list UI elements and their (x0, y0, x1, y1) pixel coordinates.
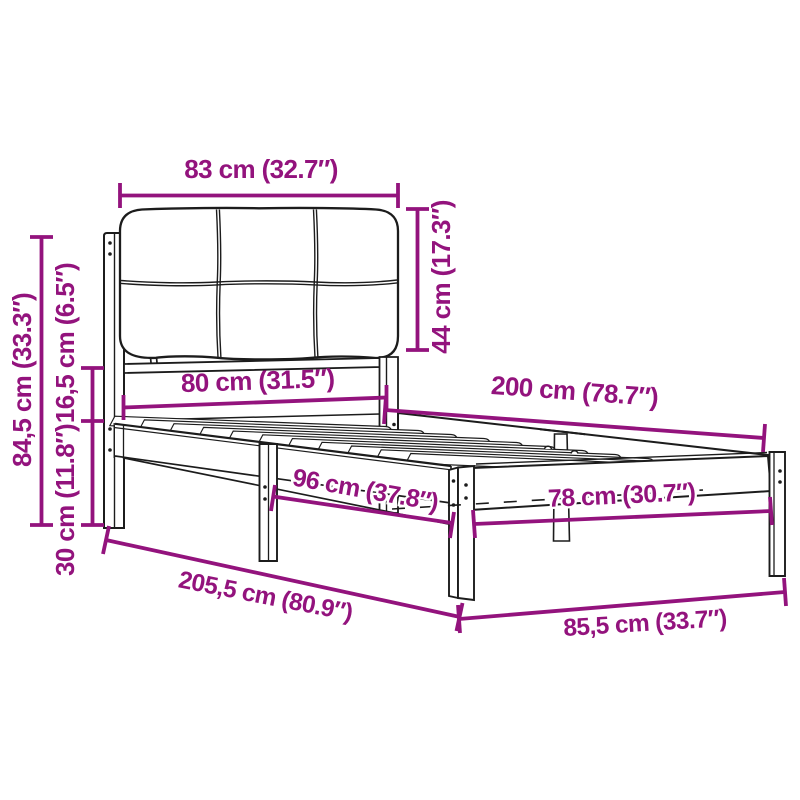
svg-text:80 cm (31.5″): 80 cm (31.5″) (180, 363, 334, 398)
svg-text:83 cm (32.7″): 83 cm (32.7″) (184, 154, 338, 184)
svg-text:30 cm (11.8″): 30 cm (11.8″) (50, 424, 80, 576)
svg-text:16,5 cm (6.5″): 16,5 cm (6.5″) (50, 263, 80, 423)
svg-text:44 cm (17.3″): 44 cm (17.3″) (426, 200, 456, 354)
svg-text:84,5 cm (33.3″): 84,5 cm (33.3″) (7, 293, 37, 467)
